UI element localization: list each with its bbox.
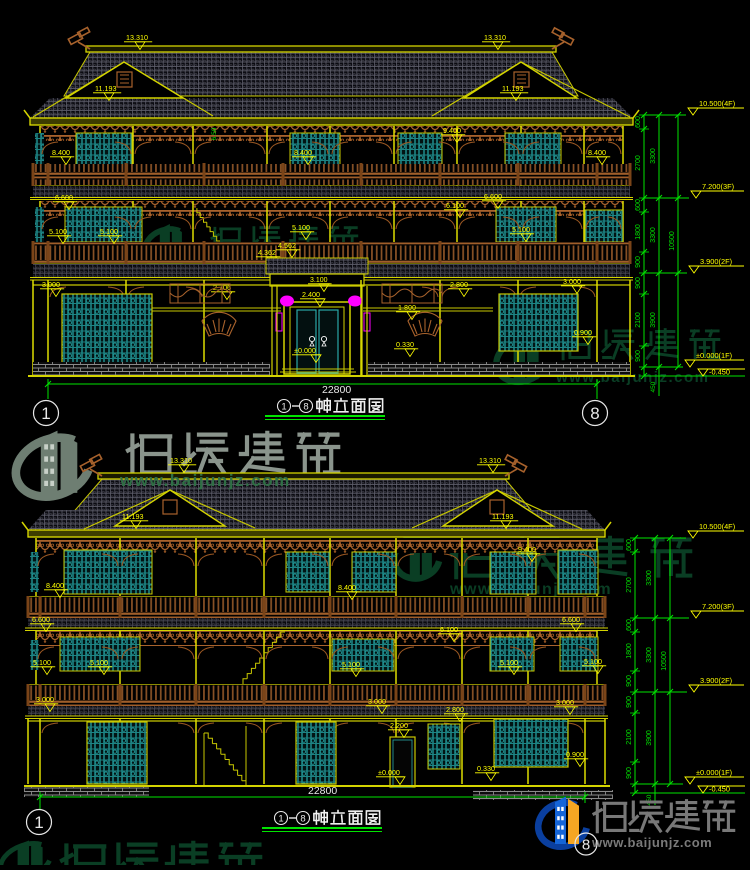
svg-text:8: 8 bbox=[582, 837, 590, 854]
svg-text:5.100: 5.100 bbox=[342, 660, 360, 669]
svg-text:900: 900 bbox=[626, 675, 633, 687]
svg-text:600: 600 bbox=[635, 116, 642, 128]
svg-text:9.400: 9.400 bbox=[518, 545, 536, 554]
svg-text:0.330: 0.330 bbox=[396, 340, 414, 349]
svg-text:1: 1 bbox=[34, 813, 43, 832]
svg-text:±0.000(1F): ±0.000(1F) bbox=[696, 768, 732, 777]
svg-text:3.000: 3.000 bbox=[36, 695, 54, 704]
svg-text:450: 450 bbox=[646, 794, 653, 805]
svg-text:11.193: 11.193 bbox=[122, 512, 143, 521]
svg-text:1: 1 bbox=[281, 402, 286, 413]
svg-text:5.100: 5.100 bbox=[49, 227, 67, 236]
svg-text:6.600: 6.600 bbox=[32, 615, 50, 624]
svg-text:600: 600 bbox=[626, 619, 633, 631]
svg-text:2.200: 2.200 bbox=[390, 721, 408, 730]
svg-text:11.193: 11.193 bbox=[492, 512, 513, 521]
svg-text:13.310: 13.310 bbox=[170, 456, 192, 465]
svg-text:6.50: 6.50 bbox=[211, 127, 218, 140]
svg-text:1800: 1800 bbox=[626, 643, 633, 659]
svg-text:22800: 22800 bbox=[308, 785, 337, 797]
svg-text:±0.000: ±0.000 bbox=[294, 346, 316, 355]
svg-text:9.400: 9.400 bbox=[443, 126, 461, 135]
svg-text:13.310: 13.310 bbox=[484, 33, 506, 42]
svg-text:10500: 10500 bbox=[669, 231, 676, 251]
svg-text:5.100: 5.100 bbox=[33, 658, 51, 667]
svg-text:8.400: 8.400 bbox=[338, 583, 356, 592]
svg-text:13.310: 13.310 bbox=[479, 456, 501, 465]
svg-text:3300: 3300 bbox=[646, 647, 653, 663]
svg-text:2.400: 2.400 bbox=[302, 290, 320, 299]
svg-text:22800: 22800 bbox=[322, 384, 351, 396]
svg-text:5.100: 5.100 bbox=[90, 658, 108, 667]
svg-text:3900: 3900 bbox=[646, 730, 653, 746]
svg-text:6.600: 6.600 bbox=[562, 615, 580, 624]
svg-text:450: 450 bbox=[650, 381, 657, 392]
svg-text:0.330: 0.330 bbox=[477, 764, 495, 773]
svg-text:8.400: 8.400 bbox=[46, 581, 64, 590]
svg-text:2700: 2700 bbox=[626, 577, 633, 593]
svg-text:3.900(2F): 3.900(2F) bbox=[700, 676, 732, 685]
svg-text:3.900(2F): 3.900(2F) bbox=[700, 257, 732, 266]
svg-text:8.400: 8.400 bbox=[588, 148, 606, 157]
svg-text:8: 8 bbox=[300, 814, 305, 825]
svg-text:3900: 3900 bbox=[650, 312, 657, 328]
svg-text:2.800: 2.800 bbox=[450, 280, 468, 289]
svg-text:±0.000(1F): ±0.000(1F) bbox=[696, 351, 732, 360]
svg-text:-0.450: -0.450 bbox=[709, 368, 730, 377]
svg-text:7.200(3F): 7.200(3F) bbox=[702, 602, 734, 611]
svg-text:0.900: 0.900 bbox=[574, 328, 592, 337]
svg-text:3300: 3300 bbox=[650, 148, 657, 164]
svg-text:1: 1 bbox=[41, 404, 50, 423]
svg-text:11.193: 11.193 bbox=[95, 84, 116, 93]
svg-text:2100: 2100 bbox=[635, 312, 642, 328]
svg-text:±0.000: ±0.000 bbox=[378, 768, 400, 777]
svg-text:900: 900 bbox=[626, 696, 633, 708]
svg-text:600: 600 bbox=[635, 199, 642, 211]
svg-text:3.100: 3.100 bbox=[310, 277, 328, 284]
svg-text:600: 600 bbox=[626, 539, 633, 551]
svg-text:8: 8 bbox=[303, 402, 308, 413]
svg-text:6.100: 6.100 bbox=[440, 625, 458, 634]
svg-text:2.800: 2.800 bbox=[446, 705, 464, 714]
svg-text:900: 900 bbox=[626, 767, 633, 779]
svg-text:5.100: 5.100 bbox=[292, 223, 310, 232]
svg-text:2700: 2700 bbox=[635, 155, 642, 171]
svg-text:8: 8 bbox=[590, 404, 599, 423]
svg-text:www.baijunjz.com: www.baijunjz.com bbox=[591, 835, 712, 850]
svg-text:3.000: 3.000 bbox=[42, 280, 60, 289]
svg-text:4.362: 4.362 bbox=[258, 248, 276, 257]
svg-text:5.100: 5.100 bbox=[100, 227, 118, 236]
svg-text:10.500(4F): 10.500(4F) bbox=[699, 99, 735, 108]
svg-text:6.600: 6.600 bbox=[484, 192, 502, 201]
svg-text:0.900: 0.900 bbox=[566, 750, 584, 759]
svg-text:8.400: 8.400 bbox=[294, 148, 312, 157]
svg-text:1800: 1800 bbox=[635, 224, 642, 240]
svg-text:3.000: 3.000 bbox=[368, 697, 386, 706]
svg-text:10.500(4F): 10.500(4F) bbox=[699, 522, 735, 531]
svg-text:8.400: 8.400 bbox=[52, 148, 70, 157]
svg-text:6.600: 6.600 bbox=[55, 193, 73, 202]
svg-text:5.100: 5.100 bbox=[512, 225, 530, 234]
svg-text:3.000: 3.000 bbox=[563, 277, 581, 286]
svg-text:900: 900 bbox=[635, 256, 642, 268]
svg-text:13.310: 13.310 bbox=[126, 33, 148, 42]
svg-text:7.200(3F): 7.200(3F) bbox=[702, 182, 734, 191]
svg-text:3.000: 3.000 bbox=[556, 698, 574, 707]
svg-text:11.193: 11.193 bbox=[502, 84, 523, 93]
svg-text:-0.450: -0.450 bbox=[709, 785, 730, 794]
svg-text:4.562: 4.562 bbox=[278, 241, 296, 250]
svg-text:3300: 3300 bbox=[646, 570, 653, 586]
svg-text:10500: 10500 bbox=[661, 651, 668, 671]
svg-text:5.100: 5.100 bbox=[584, 657, 602, 666]
svg-text:900: 900 bbox=[635, 277, 642, 289]
svg-text:2100: 2100 bbox=[626, 729, 633, 745]
svg-text:1: 1 bbox=[278, 814, 283, 825]
svg-text:3300: 3300 bbox=[650, 227, 657, 243]
svg-text:6.100: 6.100 bbox=[446, 201, 464, 210]
svg-text:5.100: 5.100 bbox=[500, 658, 518, 667]
svg-text:900: 900 bbox=[635, 350, 642, 362]
svg-text:www.baijunjz.com: www.baijunjz.com bbox=[119, 471, 291, 490]
